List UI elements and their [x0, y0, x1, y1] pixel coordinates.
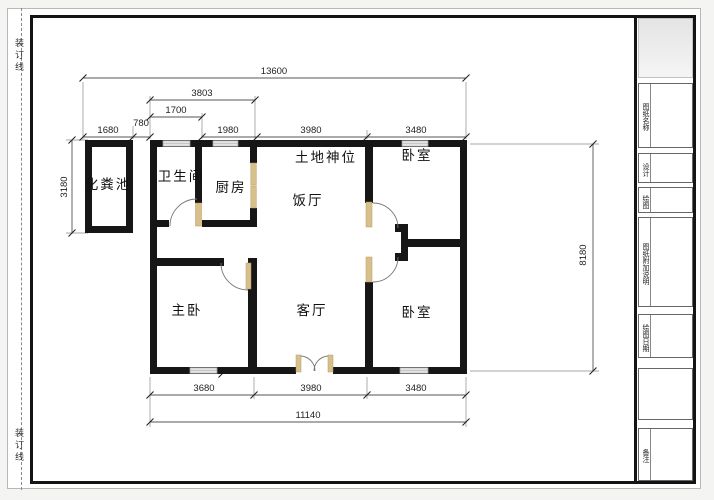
title-block-label-name: 图纸名称 — [639, 84, 651, 147]
title-block-divider — [634, 15, 637, 484]
title-block-field — [639, 369, 692, 419]
title-block-label-design: 设计 — [639, 154, 651, 182]
drawing-frame — [30, 15, 696, 484]
title-block-section-blank — [638, 368, 693, 420]
title-block-section-date: 绘图日期 — [638, 314, 693, 358]
title-block-label-remark: 备注 — [639, 429, 651, 480]
title-block-label-date: 绘图日期 — [639, 315, 651, 357]
binding-line — [21, 8, 22, 490]
title-block-section-remark: 备注 — [638, 428, 693, 481]
title-block-section-draft: 绘图 — [638, 187, 693, 213]
binding-line-label: 装订线 — [12, 428, 26, 464]
title-block-field — [651, 154, 692, 182]
binding-line-label: 装订线 — [12, 38, 26, 74]
title-block-field — [651, 218, 692, 306]
drawing-sheet: 13600 3803 1700 1680 780 1980 3980 3480 … — [0, 0, 714, 500]
title-block-field — [651, 315, 692, 357]
title-block-field — [651, 429, 692, 480]
title-block-label-draft: 绘图 — [639, 188, 651, 212]
title-block-section-notes: 图纸附加说明 — [638, 217, 693, 307]
title-block-field — [651, 84, 692, 147]
title-block-label-notes: 图纸附加说明 — [639, 218, 651, 306]
title-block-field — [651, 188, 692, 212]
title-block-header — [638, 18, 693, 78]
title-block-section-design: 设计 — [638, 153, 693, 183]
title-block-section-name: 图纸名称 — [638, 83, 693, 148]
